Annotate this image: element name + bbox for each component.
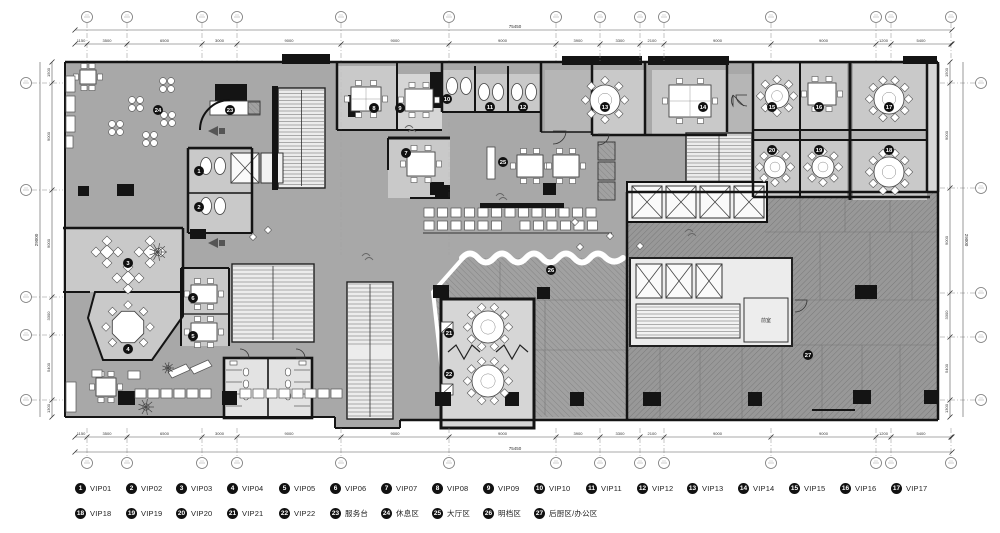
svg-text:1500: 1500 [46, 67, 51, 77]
legend-badge-number: 12 [637, 483, 648, 494]
legend-item-18: 18VIP18 [75, 508, 111, 519]
legend-label: 服务台 [345, 508, 368, 519]
legend-item-15: 15VIP15 [789, 483, 825, 494]
svg-text:3300: 3300 [616, 431, 626, 436]
legend-badge-number: 3 [176, 483, 187, 494]
legend-badge-number: 5 [279, 483, 290, 494]
legend-badge-number: 19 [126, 508, 137, 519]
plan-badge-9: 9 [395, 103, 405, 113]
plan-badge-number: 18 [886, 148, 893, 154]
plan-badge-number: 13 [602, 105, 609, 111]
legend-badge-number: 23 [330, 508, 341, 519]
legend-item-13: 13VIP13 [687, 483, 723, 494]
plan-badge-number: 23 [227, 108, 234, 114]
architecture-layer [63, 54, 940, 428]
plan-badge-number: 17 [886, 105, 892, 111]
svg-text:1200: 1200 [879, 38, 889, 43]
legend-label: VIP17 [906, 484, 927, 493]
plan-room-label: 前室 [761, 317, 771, 324]
plan-badge-number: 7 [404, 151, 407, 157]
svg-text:9000: 9000 [391, 38, 401, 43]
legend-badge-number: 22 [279, 508, 290, 519]
legend-item-25: 25大厅区 [432, 508, 470, 519]
svg-text:29000: 29000 [964, 234, 969, 247]
legend-badge-number: 16 [840, 483, 851, 494]
svg-text:9000: 9000 [391, 431, 401, 436]
legend-item-16: 16VIP16 [840, 483, 876, 494]
legend-item-24: 24休息区 [381, 508, 419, 519]
legend-badge-number: 18 [75, 508, 86, 519]
legend-label: VIP20 [191, 509, 212, 518]
legend-badge-number: 6 [330, 483, 341, 494]
plan-badge-6: 6 [188, 293, 198, 303]
legend-label: VIP13 [702, 484, 723, 493]
plan-badge-27: 27 [803, 350, 813, 360]
legend-item-26: 26明档区 [483, 508, 521, 519]
legend-item-9: 9VIP09 [483, 483, 519, 494]
legend-label: VIP12 [652, 484, 673, 493]
legend-item-5: 5VIP05 [279, 483, 315, 494]
legend-item-14: 14VIP14 [738, 483, 774, 494]
svg-text:1300: 1300 [944, 403, 949, 413]
plan-badge-number: 14 [700, 105, 707, 111]
legend-item-23: 23服务台 [330, 508, 368, 519]
svg-text:3900: 3900 [574, 38, 584, 43]
legend-item-11: 11VIP11 [586, 483, 622, 494]
legend-label: VIP19 [141, 509, 162, 518]
svg-text:1300: 1300 [46, 403, 51, 413]
plan-badge-24: 24 [153, 105, 163, 115]
svg-text:3300: 3300 [616, 38, 626, 43]
svg-text:6500: 6500 [160, 431, 170, 436]
plan-badge-20: 20 [767, 145, 777, 155]
plan-badge-number: 12 [520, 105, 526, 111]
svg-text:1150: 1150 [77, 38, 86, 43]
legend-label: VIP09 [498, 484, 519, 493]
plan-badge-26: 26 [546, 265, 556, 275]
svg-text:1200: 1200 [879, 431, 889, 436]
legend-item-27: 27后厨区/办公区 [534, 508, 597, 519]
legend-badge-number: 10 [534, 483, 545, 494]
legend-label: VIP06 [345, 484, 366, 493]
plan-badge-number: 15 [769, 105, 776, 111]
plan-badge-number: 21 [446, 331, 453, 337]
plan-badge-18: 18 [884, 145, 894, 155]
svg-text:3300: 3300 [46, 311, 51, 321]
legend-badge-number: 15 [789, 483, 800, 494]
legend-label: VIP14 [753, 484, 774, 493]
legend-badge-number: 20 [176, 508, 187, 519]
legend-label: VIP07 [396, 484, 417, 493]
legend-label: VIP11 [601, 484, 622, 493]
legend-badge-number: 26 [483, 508, 494, 519]
plan-badge-8: 8 [369, 103, 379, 113]
svg-text:9000: 9000 [819, 431, 829, 436]
legend-badge-number: 11 [586, 483, 597, 494]
legend-item-22: 22VIP22 [279, 508, 315, 519]
legend-label: VIP22 [294, 509, 315, 518]
plan-badge-12: 12 [518, 102, 528, 112]
legend-badge-number: 8 [432, 483, 443, 494]
legend-label: VIP08 [447, 484, 468, 493]
svg-text:9000: 9000 [285, 38, 295, 43]
plan-badge-19: 19 [814, 145, 824, 155]
plan-badge-10: 10 [442, 94, 452, 104]
legend-badge-number: 9 [483, 483, 494, 494]
plan-badge-number: 26 [548, 268, 555, 274]
plan-badge-number: 27 [805, 353, 811, 359]
legend-badge-number: 7 [381, 483, 392, 494]
legend-badge-number: 21 [227, 508, 238, 519]
plan-badge-number: 20 [769, 148, 775, 154]
svg-text:3000: 3000 [215, 431, 225, 436]
legend-label: VIP18 [90, 509, 111, 518]
legend-label: 明档区 [498, 508, 521, 519]
legend-badge-number: 24 [381, 508, 392, 519]
legend-item-10: 10VIP10 [534, 483, 570, 494]
svg-text:9000: 9000 [498, 431, 508, 436]
legend-item-3: 3VIP03 [176, 483, 212, 494]
legend-item-6: 6VIP06 [330, 483, 366, 494]
plan-badge-number: 2 [197, 205, 200, 211]
svg-text:3500: 3500 [103, 431, 113, 436]
plan-badge-7: 7 [401, 148, 411, 158]
legend-badge-number: 27 [534, 508, 545, 519]
svg-text:5400: 5400 [917, 38, 927, 43]
legend-item-17: 17VIP17 [891, 483, 927, 494]
plan-badge-15: 15 [767, 102, 777, 112]
svg-text:9000: 9000 [46, 238, 51, 248]
legend-item-8: 8VIP08 [432, 483, 468, 494]
legend-badge-number: 4 [227, 483, 238, 494]
legend-label: VIP01 [90, 484, 111, 493]
legend-item-1: 1VIP01 [75, 483, 111, 494]
plan-badge-2: 2 [194, 202, 204, 212]
legend-label: VIP21 [242, 509, 263, 518]
plan-badge-14: 14 [698, 102, 708, 112]
plan-badge-3: 3 [123, 258, 133, 268]
svg-text:9000: 9000 [498, 38, 508, 43]
legend-item-19: 19VIP19 [126, 508, 162, 519]
svg-text:5400: 5400 [917, 431, 927, 436]
plan-badge-16: 16 [814, 102, 824, 112]
legend-label: 后厨区/办公区 [549, 508, 597, 519]
legend: 1VIP012VIP023VIP034VIP045VIP056VIP067VIP… [0, 470, 1000, 533]
svg-text:6500: 6500 [160, 38, 170, 43]
svg-text:9000: 9000 [819, 38, 829, 43]
legend-item-12: 12VIP12 [637, 483, 673, 494]
legend-badge-number: 14 [738, 483, 749, 494]
legend-label: VIP10 [549, 484, 570, 493]
plan-text-layer: 前室 [761, 317, 771, 324]
legend-item-2: 2VIP02 [126, 483, 162, 494]
legend-item-20: 20VIP20 [176, 508, 212, 519]
plan-badge-25: 25 [498, 157, 508, 167]
plan-badge-number: 16 [816, 105, 823, 111]
svg-text:1150: 1150 [77, 431, 86, 436]
legend-item-7: 7VIP07 [381, 483, 417, 494]
plan-badge-number: 25 [500, 160, 507, 166]
svg-text:3000: 3000 [215, 38, 225, 43]
legend-badge-number: 25 [432, 508, 443, 519]
legend-label: VIP02 [141, 484, 162, 493]
svg-text:3900: 3900 [574, 431, 584, 436]
svg-text:1500: 1500 [944, 67, 949, 77]
svg-text:5400: 5400 [944, 363, 949, 373]
legend-badge-number: 2 [126, 483, 137, 494]
svg-text:9000: 9000 [713, 431, 723, 436]
svg-text:5400: 5400 [46, 362, 51, 372]
plan-badge-1: 1 [194, 166, 204, 176]
legend-item-21: 21VIP21 [227, 508, 263, 519]
plan-badge-5: 5 [188, 331, 198, 341]
legend-label: VIP03 [191, 484, 212, 493]
svg-text:3300: 3300 [944, 310, 949, 320]
legend-badge-number: 13 [687, 483, 698, 494]
plan-badge-number: 24 [155, 108, 162, 114]
plan-badge-4: 4 [123, 344, 133, 354]
plan-badge-17: 17 [884, 102, 894, 112]
plan-badge-number: 19 [816, 148, 823, 154]
legend-label: 大厅区 [447, 508, 470, 519]
svg-text:29000: 29000 [34, 233, 39, 246]
legend-badge-number: 17 [891, 483, 902, 494]
svg-text:9000: 9000 [713, 38, 723, 43]
svg-text:9000: 9000 [46, 131, 51, 141]
plan-badge-number: 10 [444, 97, 450, 103]
legend-badge-number: 1 [75, 483, 86, 494]
plan-badge-13: 13 [600, 102, 610, 112]
svg-text:3500: 3500 [103, 38, 113, 43]
plan-badge-22: 22 [444, 369, 454, 379]
legend-label: VIP15 [804, 484, 825, 493]
legend-item-4: 4VIP04 [227, 483, 263, 494]
svg-text:2100: 2100 [648, 431, 658, 436]
svg-text:75450: 75450 [509, 446, 522, 451]
svg-text:75450: 75450 [509, 24, 522, 29]
plan-badge-number: 11 [487, 105, 494, 111]
legend-label: VIP16 [855, 484, 876, 493]
legend-label: 休息区 [396, 508, 419, 519]
floorplan-sheet: 1150350065003000900090009000390033002100… [0, 0, 1000, 533]
legend-label: VIP05 [294, 484, 315, 493]
svg-text:9000: 9000 [944, 130, 949, 140]
svg-text:2100: 2100 [648, 38, 658, 43]
plan-badge-11: 11 [485, 102, 495, 112]
svg-text:9000: 9000 [944, 235, 949, 245]
plan-badge-number: 22 [446, 372, 452, 378]
plan-badge-23: 23 [225, 105, 235, 115]
legend-label: VIP04 [242, 484, 263, 493]
svg-text:9000: 9000 [285, 431, 295, 436]
plan-badge-21: 21 [444, 328, 454, 338]
floorplan-canvas: 1150350065003000900090009000390033002100… [0, 0, 1000, 470]
